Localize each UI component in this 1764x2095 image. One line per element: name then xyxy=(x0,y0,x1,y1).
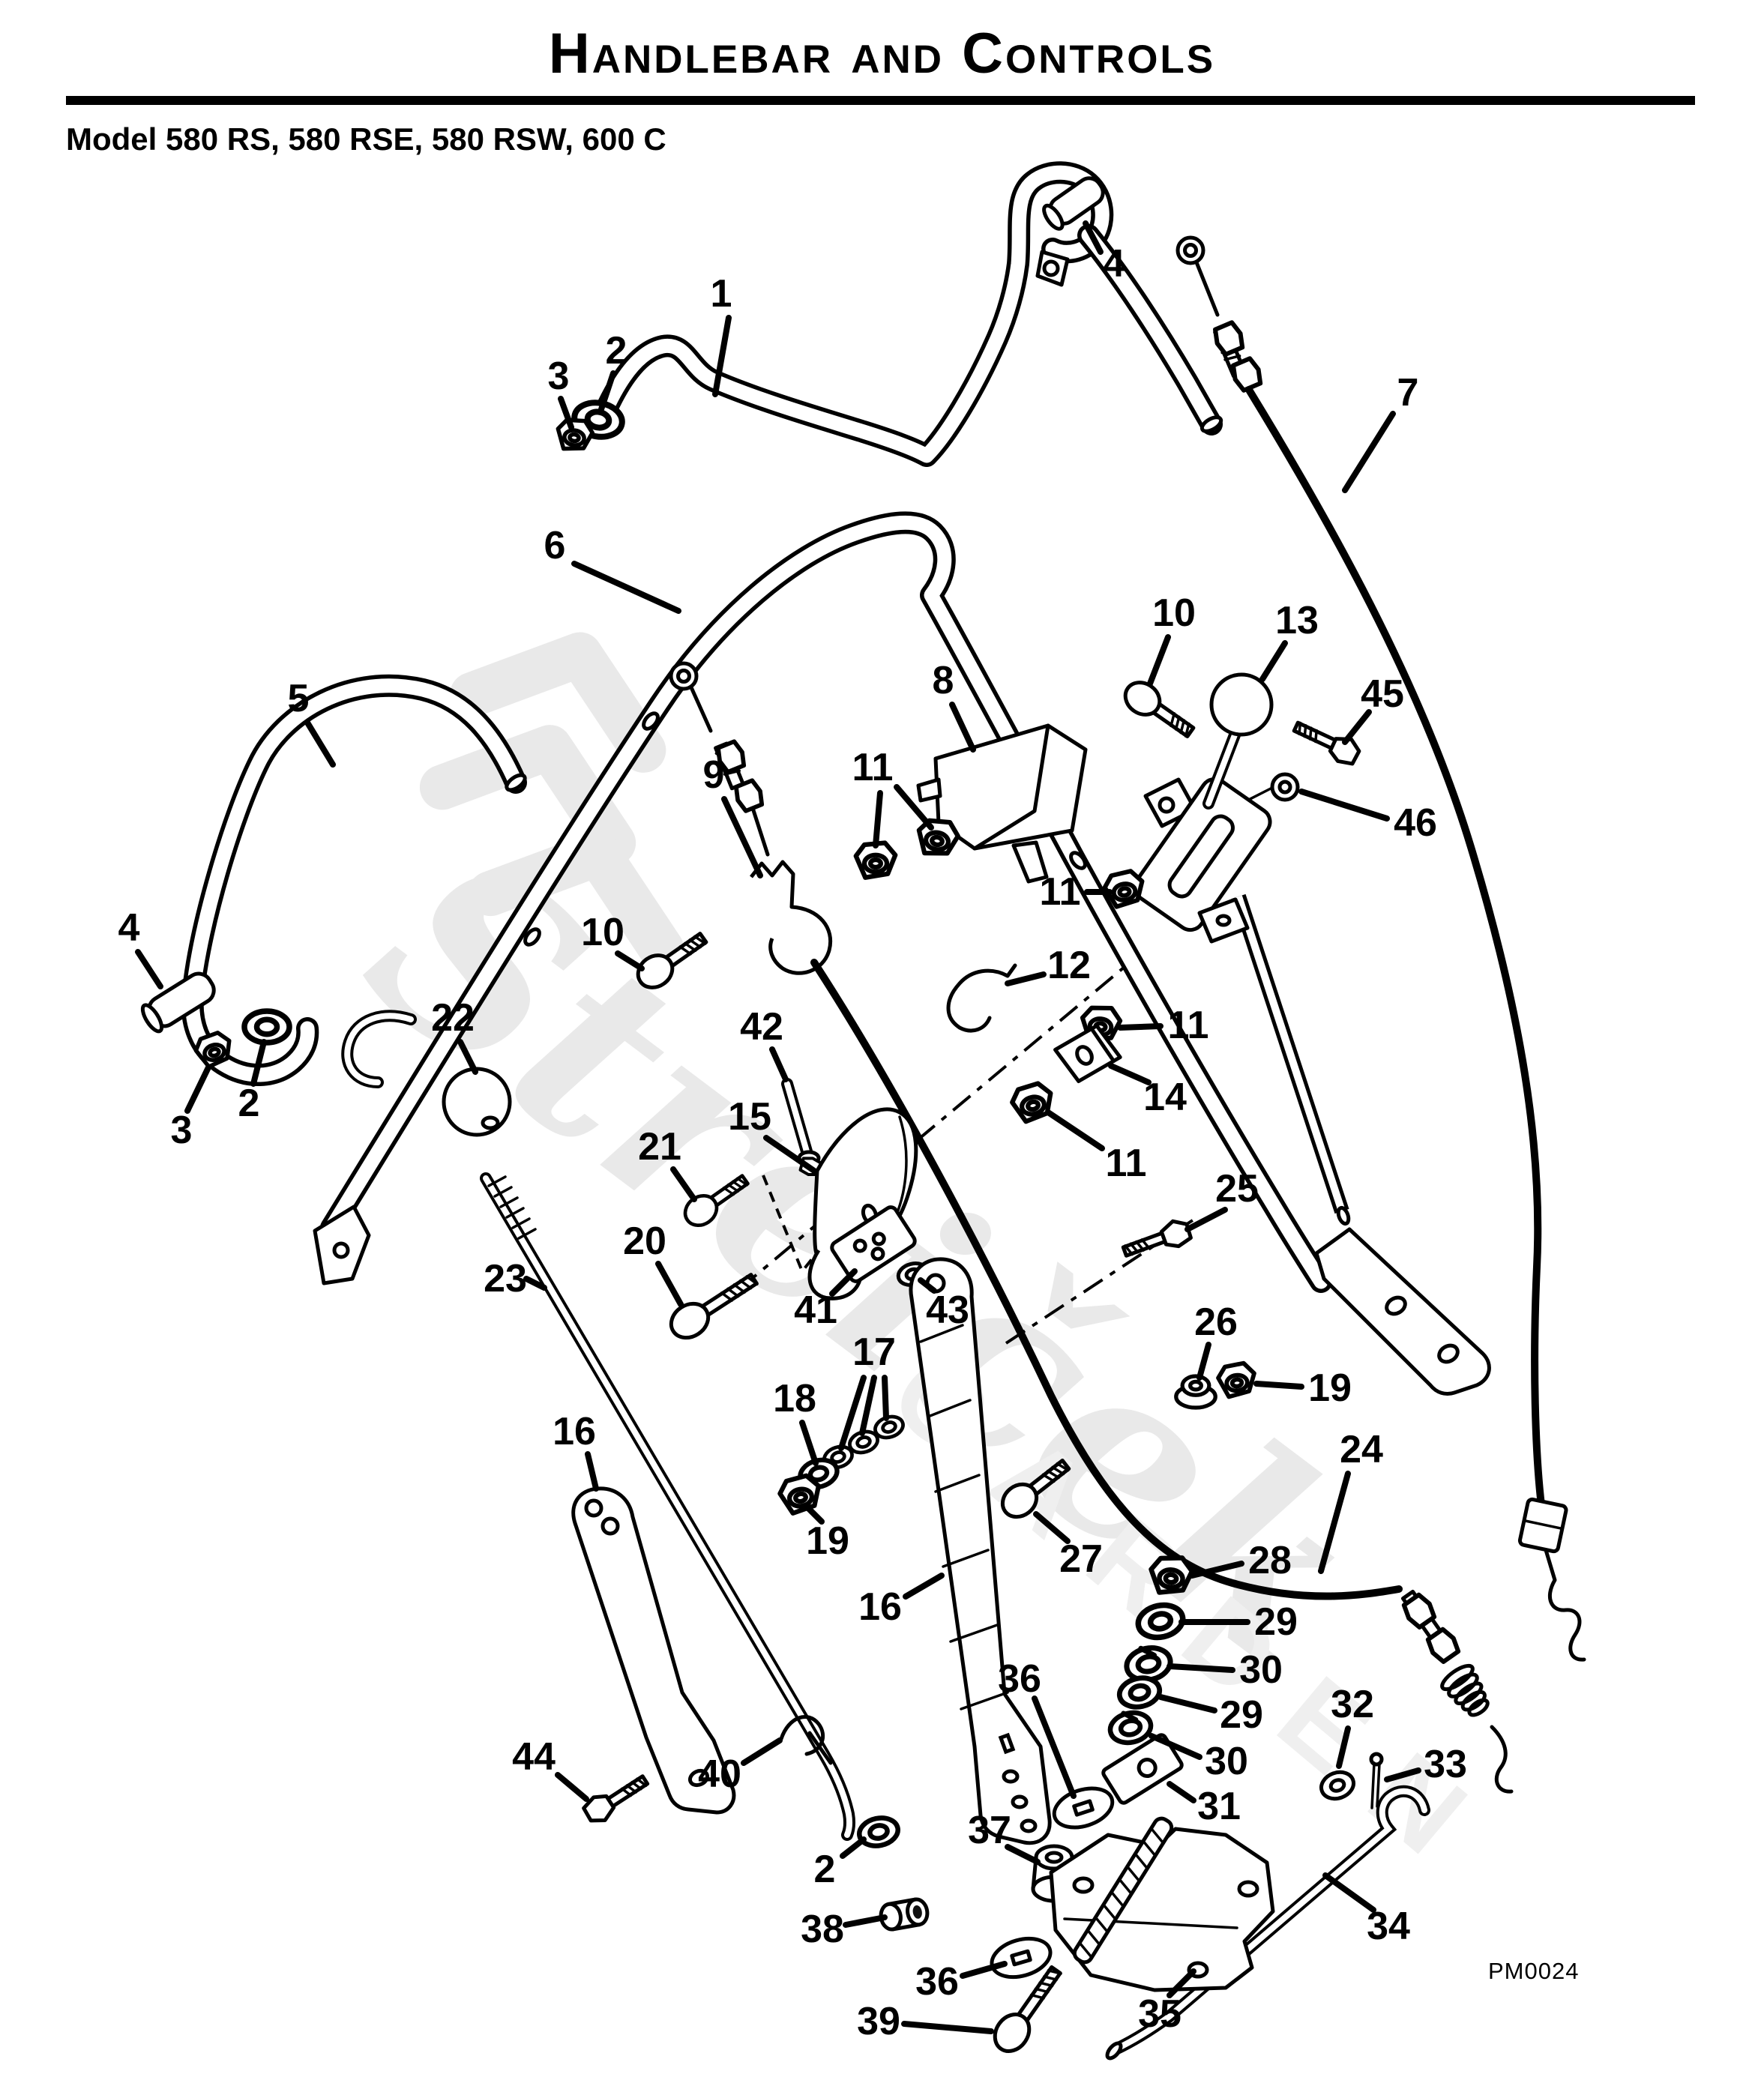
leader-line-19 xyxy=(808,1508,822,1522)
figure-code: PM0024 xyxy=(1488,1958,1579,1985)
lever-washer xyxy=(1272,774,1298,800)
leader-line-21 xyxy=(673,1169,694,1199)
leader-line-29 xyxy=(1161,1697,1214,1710)
leader-line-27 xyxy=(1036,1514,1068,1541)
model-line: Model 580 RS, 580 RSE, 580 RSW, 600 C xyxy=(66,121,666,157)
leader-line-24 xyxy=(1321,1474,1348,1571)
leader-line-13 xyxy=(1262,643,1285,679)
leader-line-19 xyxy=(1256,1384,1301,1387)
title-rule xyxy=(66,96,1695,105)
leader-line-38 xyxy=(846,1917,885,1925)
leader-line-26 xyxy=(1199,1345,1208,1378)
left-handle-brace xyxy=(574,1489,900,1849)
leader-line-22 xyxy=(460,1042,475,1072)
leader-line-25 xyxy=(1187,1210,1225,1229)
leader-line-32 xyxy=(1339,1728,1348,1766)
leader-line-33 xyxy=(1387,1770,1418,1779)
page-title: Handlebar and Controls xyxy=(0,21,1764,86)
drive-cable xyxy=(671,663,1511,1791)
leader-line-5 xyxy=(307,723,333,765)
leader-line-40 xyxy=(744,1740,780,1763)
leader-line-11 xyxy=(876,793,880,845)
leader-line-34 xyxy=(1325,1875,1373,1910)
leader-line-46 xyxy=(1301,792,1387,819)
throttle-control-housing xyxy=(918,726,1086,881)
leader-line-37 xyxy=(1008,1847,1038,1862)
leader-line-16 xyxy=(588,1454,596,1489)
mount-bracket-group xyxy=(879,1782,1273,2058)
washer-stack xyxy=(777,1413,906,1515)
leader-line-44 xyxy=(558,1775,586,1799)
leader-line-31 xyxy=(1170,1784,1193,1800)
upper-handle-bar xyxy=(593,172,1223,456)
leader-line-7 xyxy=(1345,414,1393,490)
bracket-group xyxy=(444,1069,1256,1408)
leader-line-6 xyxy=(574,564,678,611)
spacer-38 xyxy=(879,1898,930,1931)
leader-line-20 xyxy=(658,1264,681,1304)
leader-line-12 xyxy=(1008,974,1044,983)
leader-line-42 xyxy=(772,1049,786,1079)
leader-line-18 xyxy=(802,1423,816,1463)
leader-line-11 xyxy=(1048,1112,1102,1148)
leader-line-2 xyxy=(843,1839,864,1856)
leader-line-4 xyxy=(138,952,160,986)
washer-32 xyxy=(1318,1768,1358,1803)
leader-line-17 xyxy=(885,1378,886,1418)
parts-diagram-page: Streiček GARDEN xyxy=(0,0,1764,2095)
leader-line-16 xyxy=(906,1576,942,1597)
leader-line-10 xyxy=(1150,637,1168,684)
bail-grip xyxy=(139,969,219,1034)
lower-handle-tube xyxy=(315,522,1489,1393)
exploded-parts-diagram xyxy=(0,0,1764,2095)
leader-line-11 xyxy=(1120,1026,1161,1028)
leader-line-14 xyxy=(1111,1066,1149,1082)
leader-line-39 xyxy=(904,2024,991,2031)
leader-line-8 xyxy=(952,705,973,750)
cable-spring xyxy=(1439,1662,1496,1722)
leader-line-30 xyxy=(1170,1666,1232,1670)
leader-line-10 xyxy=(618,953,642,968)
throttle-cable xyxy=(1178,238,1584,1660)
leader-line-3 xyxy=(187,1067,208,1111)
leader-line-45 xyxy=(1345,712,1369,742)
